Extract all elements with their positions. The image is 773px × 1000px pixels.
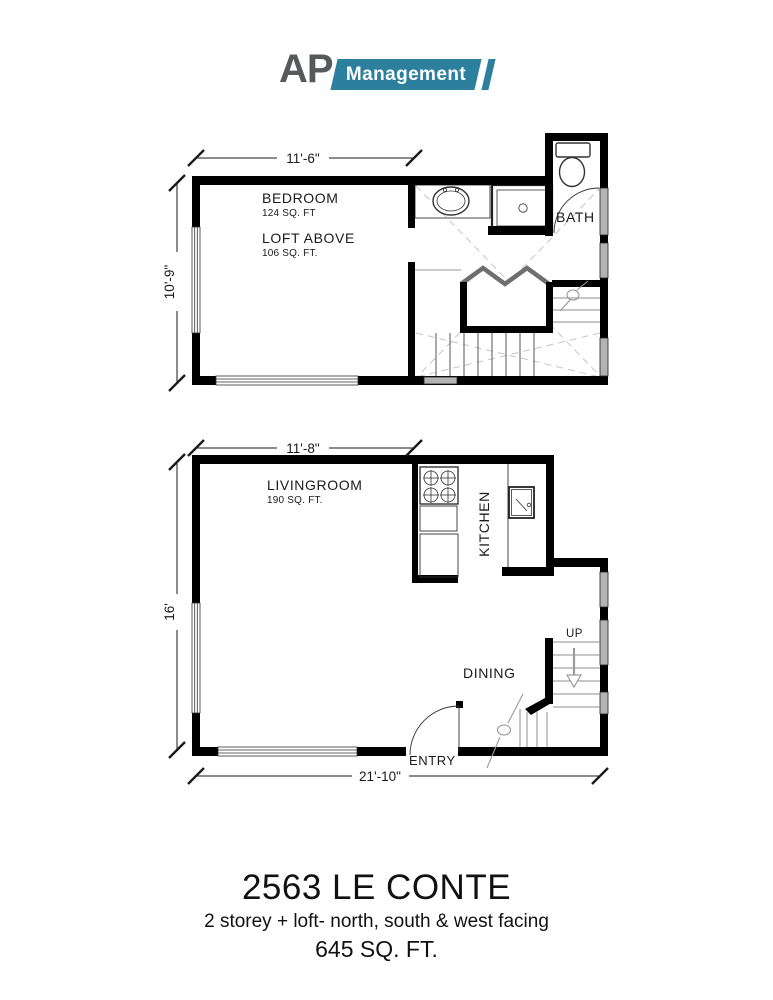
livingroom-label: LIVINGROOM: [267, 477, 362, 493]
bath-label: BATH: [556, 209, 595, 225]
lower-walls: [192, 455, 608, 756]
title-block: 2563 LE CONTE 2 storey + loft- north, so…: [0, 868, 753, 964]
stove: [420, 467, 458, 504]
lower-stair-treads: [520, 642, 600, 747]
upper-stairwell: [460, 268, 553, 333]
bedroom-area-label: 124 SQ. FT: [262, 208, 316, 219]
dining-label: DINING: [463, 665, 516, 681]
livingroom-area-label: 190 SQ. FT.: [267, 495, 323, 506]
floor-plan-sheet: AP Management: [0, 0, 773, 1000]
lower-room-labels: LIVINGROOM 190 SQ. FT. KITCHEN DINING UP…: [267, 477, 583, 768]
vanity-sink: [415, 185, 490, 218]
kitchen-sink: [509, 487, 534, 518]
upper-width-dimension: 11'-6": [286, 151, 320, 166]
plan-total-area: 645 SQ. FT.: [0, 935, 753, 964]
plan-subtitle: 2 storey + loft- north, south & west fac…: [0, 908, 753, 935]
upper-dimensions: 11'-6" 10'-9": [162, 150, 422, 391]
kitchen-label: KITCHEN: [476, 491, 492, 557]
lower-floor-plan: 11'-8" 16' 21'-10" LIVINGROOM 190 SQ. FT…: [162, 440, 608, 784]
upper-stair-treads: [436, 333, 534, 376]
loft-area-label: 106 SQ. FT.: [262, 248, 318, 259]
up-label: UP: [566, 628, 583, 640]
upper-walls: [192, 133, 608, 385]
floor-plan-drawing: 11'-6" 10'-9" BEDROOM 124 SQ. FT LOFT AB…: [0, 0, 773, 1000]
lower-dimensions: 11'-8" 16' 21'-10": [162, 440, 608, 784]
plan-title: 2563 LE CONTE: [0, 868, 753, 908]
entry-door: [410, 706, 459, 755]
loft-label: LOFT ABOVE: [262, 230, 355, 246]
upper-height-dimension: 10'-9": [162, 265, 177, 300]
lower-height-dimension: 16': [162, 603, 177, 621]
overall-width-dimension: 21'-10": [359, 769, 401, 784]
toilet: [556, 143, 590, 187]
lower-break-symbol: [487, 694, 523, 768]
entry-label: ENTRY: [409, 753, 456, 768]
lower-width-dimension: 11'-8": [286, 441, 320, 456]
bedroom-label: BEDROOM: [262, 190, 339, 206]
upper-floor-plan: 11'-6" 10'-9" BEDROOM 124 SQ. FT LOFT AB…: [162, 133, 608, 391]
shower: [492, 185, 552, 231]
